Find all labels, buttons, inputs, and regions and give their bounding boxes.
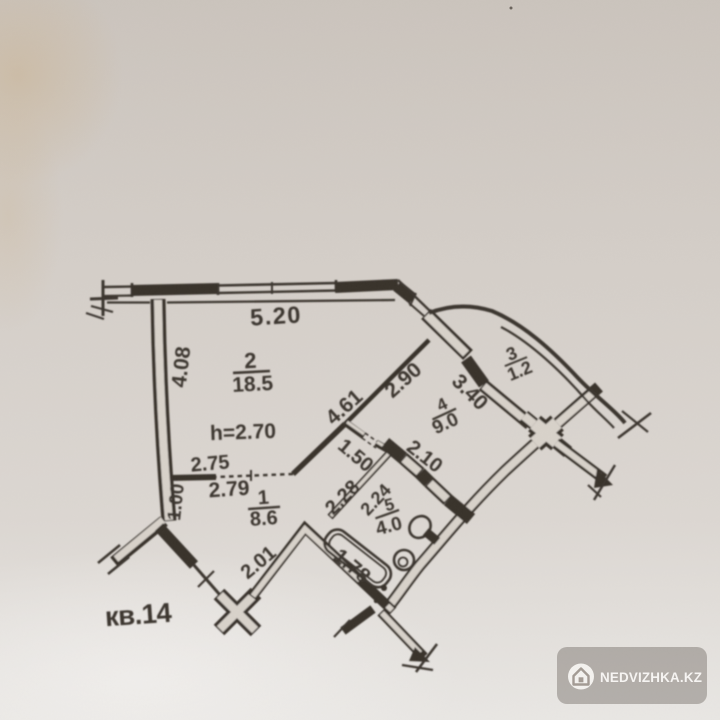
svg-text:NEDVIZHKA.KZ: NEDVIZHKA.KZ [600,670,702,685]
